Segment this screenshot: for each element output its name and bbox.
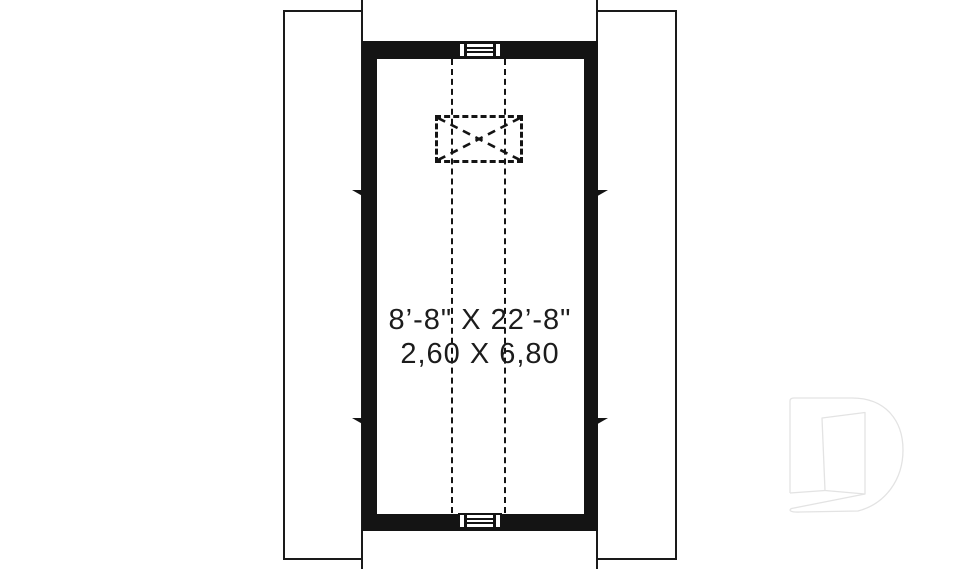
vent-slat <box>467 522 493 524</box>
vent-endbar <box>493 44 496 56</box>
room-dimension-imperial: 8’-8" X 22’-8" <box>360 303 600 337</box>
vent-endbar <box>464 515 467 527</box>
roof-slope-panel-left <box>283 10 363 560</box>
vent-slat <box>467 51 493 53</box>
room-dimension-label: 8’-8" X 22’-8" 2,60 X 6,80 <box>360 303 600 371</box>
roof-slope-panel-right <box>597 10 677 560</box>
chimney-x-icon <box>438 118 520 160</box>
vent-slat <box>467 47 493 49</box>
vent-endbar <box>493 515 496 527</box>
floorplan-canvas: 8’-8" X 22’-8" 2,60 X 6,80 <box>0 0 960 569</box>
vent-endbar <box>464 44 467 56</box>
louver-vent-bottom-icon <box>458 513 502 529</box>
louver-vent-top-icon <box>458 42 502 58</box>
room-dimension-metric: 2,60 X 6,80 <box>360 337 600 371</box>
chimney-dashed-box-icon <box>435 115 523 163</box>
drummond-logo-watermark-icon <box>782 390 910 520</box>
vent-slat <box>467 518 493 520</box>
